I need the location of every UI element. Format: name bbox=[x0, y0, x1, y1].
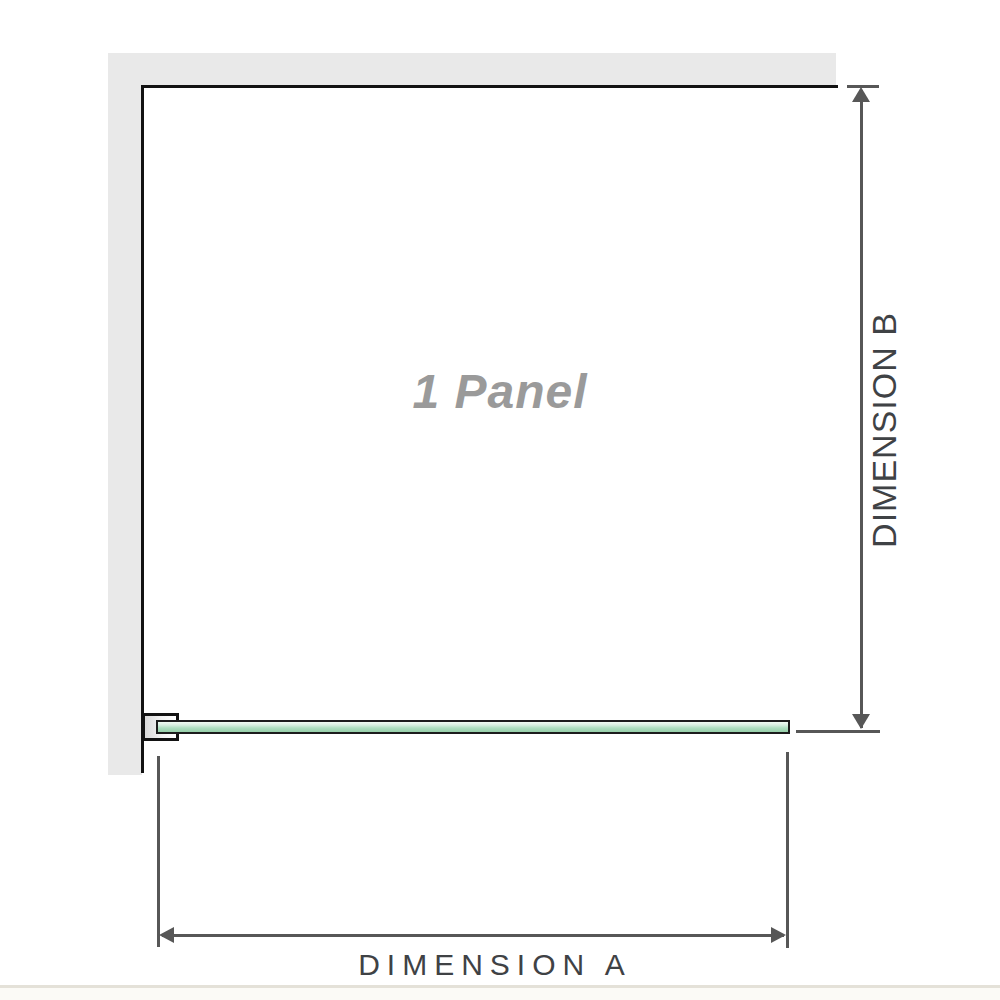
dimension-a-line bbox=[162, 934, 784, 937]
shower-screen-dimension-diagram: 1 Panel DIMENSION B DIMENSION A bbox=[0, 0, 1000, 1000]
panel-frame-top-line bbox=[141, 85, 838, 88]
arrow-left-icon bbox=[159, 927, 174, 943]
wall-band-left bbox=[108, 53, 142, 775]
wall-band-top bbox=[108, 53, 836, 85]
arrow-up-icon bbox=[852, 87, 870, 102]
dimension-b-label: DIMENSION B bbox=[867, 280, 901, 580]
dimension-a-right-extension bbox=[786, 752, 789, 948]
glass-panel bbox=[156, 720, 790, 734]
dimension-a-label: DIMENSION A bbox=[142, 948, 848, 982]
panel-count-label: 1 Panel bbox=[142, 364, 858, 419]
panel-frame-left-line bbox=[141, 85, 144, 773]
arrow-down-icon bbox=[852, 714, 870, 729]
dimension-b-bottom-tick bbox=[796, 730, 880, 733]
dimension-b-line bbox=[860, 90, 863, 728]
bottom-strip bbox=[0, 988, 1000, 1000]
dimension-a-left-extension bbox=[157, 756, 160, 947]
arrow-right-icon bbox=[771, 927, 786, 943]
